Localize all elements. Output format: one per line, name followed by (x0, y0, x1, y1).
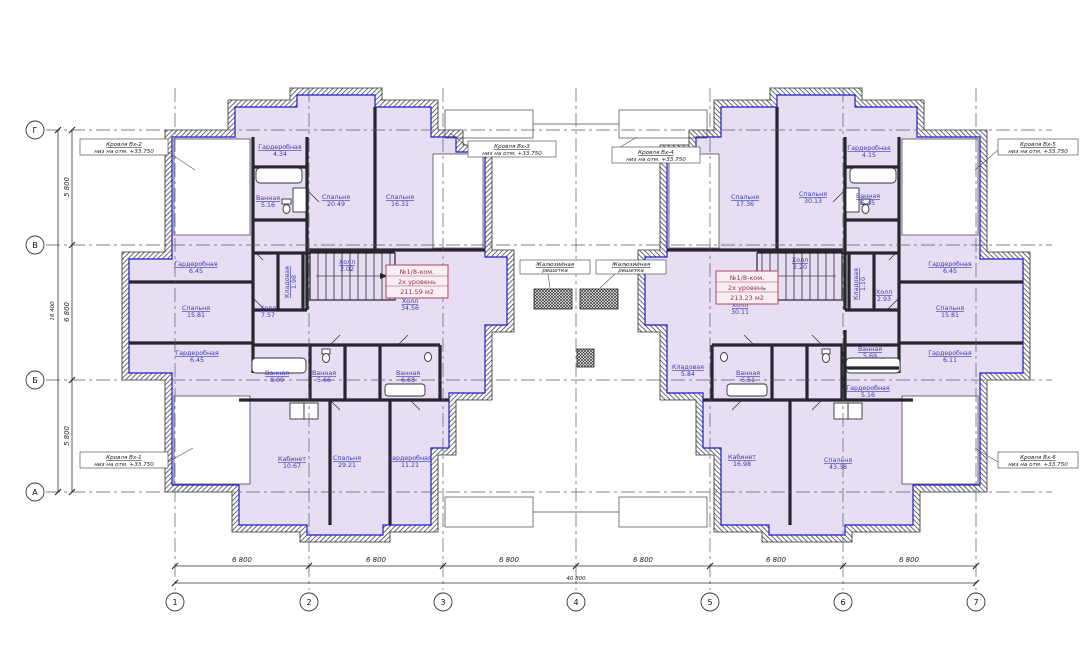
room-area: 2.20 (793, 264, 807, 271)
room-label: Холл (339, 259, 355, 266)
room-area: 5.45 (861, 200, 875, 207)
column-bubbles: 1 2 3 4 5 6 7 (166, 593, 985, 611)
room-label: Ванная (858, 346, 882, 353)
room-area: 30.11 (731, 309, 749, 316)
col-label: 6 (840, 598, 845, 607)
floor-plan-sheet: 6 800 6 800 6 800 6 800 6 800 6 800 40 8… (0, 0, 1080, 667)
room-label: Гардеробная (175, 349, 219, 357)
room-area: 4.34 (273, 151, 287, 158)
room-area: 15.81 (187, 312, 205, 319)
room-area: 17.36 (736, 201, 754, 208)
left-dimensions: 5 800 6 800 5 800 18 400 (50, 127, 75, 495)
apartment-area: 211.59 м2 (400, 288, 434, 296)
callout-note: низ на отм. +33.750 (1008, 462, 1068, 468)
callout-title: Кровля Вх-2 (106, 142, 142, 148)
apartment-level: 2х уровень (728, 284, 766, 292)
room-area: 16.31 (391, 201, 409, 208)
col-label: 3 (440, 598, 445, 607)
apartment-number: №1/8-ком. (399, 268, 434, 276)
room-label: Гардеробная (388, 454, 432, 462)
room-label: Гардеробная (846, 384, 890, 392)
room-label: Спальня (322, 194, 350, 201)
room-label: Холл (260, 305, 276, 312)
apartment-tag-right: №1/8-ком. 2х уровень 213.23 м2 (716, 271, 778, 304)
callout-note: низ на отм. +33.750 (1008, 149, 1068, 155)
room-label: Спальня (824, 457, 852, 464)
dim-bay: 6 800 (766, 556, 787, 564)
row-bubbles: Г В Б А (26, 121, 44, 501)
room-area: 10.67 (283, 463, 301, 470)
room-area: 5.84 (681, 371, 695, 378)
room-area: 6.68 (401, 377, 415, 384)
callout-title: Кровля Вх-5 (1020, 142, 1056, 148)
room-area: 30.13 (804, 198, 822, 205)
left-wing (122, 88, 514, 542)
room-area: 1.98 (291, 275, 298, 289)
apartment-level: 2х уровень (398, 278, 436, 286)
porch-bottom-left (445, 497, 533, 527)
bottom-dimensions: 6 800 6 800 6 800 6 800 6 800 6 800 40 8… (172, 556, 979, 586)
apartment-tag-left: №1/8-ком. 2х уровень 211.59 м2 (386, 265, 448, 298)
callout-title: Кровля Вх-3 (494, 144, 530, 150)
room-label: Холл (876, 289, 892, 296)
room-area: 1.10 (860, 277, 867, 291)
dim-bay: 6 800 (899, 556, 920, 564)
dim-bay: 6 800 (499, 556, 520, 564)
callout-top-mid-right: Кровля Вх-4 низ на отм. +33.750 (612, 137, 700, 163)
dim-bay: 6 800 (366, 556, 387, 564)
callout-title: Кровля Вх-6 (1020, 455, 1056, 461)
room-area: 34.56 (401, 305, 419, 312)
room-label: Спальня (936, 305, 964, 312)
room-area: 16.98 (733, 461, 751, 468)
row-label: В (32, 241, 38, 250)
callout-note: низ на отм. +33.750 (626, 157, 686, 163)
room-label: Ванная (256, 195, 280, 202)
col-label: 2 (306, 598, 311, 607)
callout-top-right: Кровля Вх-5 низ на отм. +33.750 (975, 139, 1078, 170)
dim-row: 5 800 (63, 176, 71, 197)
dim-row: 6 800 (63, 301, 71, 322)
callout-note: решетка (541, 268, 568, 274)
dim-bay: 6 800 (633, 556, 654, 564)
room-label: Ванная (856, 193, 880, 200)
callout-shaft-left: Жалюзийная решетка (520, 260, 590, 288)
room-label: Гардеробная (258, 143, 302, 151)
room-label: Спальня (731, 194, 759, 201)
room-area: 5.69 (863, 353, 877, 360)
room-label: Гардеробная (928, 349, 972, 357)
room-label: Гардеробная (174, 260, 218, 268)
room-label: Гардеробная (847, 144, 891, 152)
callout-bottom-right: Кровля Вх-6 низ на отм. +33.750 (975, 448, 1078, 468)
room-area: 11.21 (401, 462, 419, 469)
room-label: Спальня (333, 455, 361, 462)
room-label: Спальня (386, 194, 414, 201)
porch-bottom-right (619, 497, 707, 527)
dim-total-width: 40 800 (566, 576, 586, 582)
callout-note: решетка (617, 268, 644, 274)
room-area: 15.81 (941, 312, 959, 319)
louver-grille-left (534, 289, 572, 309)
room-area: 6.11 (943, 357, 957, 364)
col-label: 7 (973, 598, 978, 607)
room-area: 5.16 (261, 202, 275, 209)
room-label: Спальня (182, 305, 210, 312)
room-label: Холл (402, 298, 418, 305)
room-label: Ванная (736, 370, 760, 377)
callout-note: низ на отм. +33.750 (94, 149, 154, 155)
apartment-area: 213.23 м2 (730, 294, 764, 302)
room-area: 29.21 (338, 462, 356, 469)
dim-bay: 6 800 (232, 556, 253, 564)
apartment-number: №1/8-ком. (729, 274, 764, 282)
floor-plan-drawing: 6 800 6 800 6 800 6 800 6 800 6 800 40 8… (0, 0, 1080, 667)
room-area: 6.45 (189, 268, 203, 275)
room-area: 7.57 (261, 312, 275, 319)
room-label: Кабинет (728, 453, 756, 461)
room-label: Гардеробная (928, 260, 972, 268)
room-label: Кладовая (284, 266, 291, 298)
room-label: Кабинет (278, 455, 306, 463)
room-area: 20.49 (327, 201, 345, 208)
vent-shaft (577, 349, 594, 367)
louver-grille-right (580, 289, 618, 309)
room-area: 8.09 (270, 377, 284, 384)
room-area: 6.45 (943, 268, 957, 275)
dim-total-height: 18 400 (50, 301, 56, 321)
col-label: 1 (172, 598, 177, 607)
row-label: Г (33, 126, 38, 135)
callout-title: Кровля Вх-4 (638, 150, 674, 156)
room-area: 5.66 (317, 377, 331, 384)
room-area: 5.16 (861, 392, 875, 399)
callout-title: Кровля Вх-1 (106, 455, 142, 461)
col-label: 4 (573, 598, 578, 607)
room-label: Холл (792, 257, 808, 264)
room-area: 6.45 (190, 357, 204, 364)
room-label: Кладовая (853, 268, 860, 300)
row-label: А (32, 488, 38, 497)
room-label: Спальня (799, 191, 827, 198)
room-label: Ванная (396, 370, 420, 377)
callout-note: низ на отм. +33.750 (482, 151, 542, 157)
room-label: Кладовая (672, 364, 704, 371)
room-area: 6.51 (741, 377, 755, 384)
row-label: Б (32, 376, 38, 385)
room-label: Ванная (312, 370, 336, 377)
dim-row: 5 800 (63, 425, 71, 446)
room-area: 2.93 (877, 296, 891, 303)
room-area: 43.38 (829, 464, 847, 471)
room-label: Ванная (265, 370, 289, 377)
room-area: 4.15 (862, 152, 876, 159)
callout-note: низ на отм. +33.750 (94, 462, 154, 468)
col-label: 5 (707, 598, 712, 607)
room-area: 2.02 (340, 266, 354, 273)
